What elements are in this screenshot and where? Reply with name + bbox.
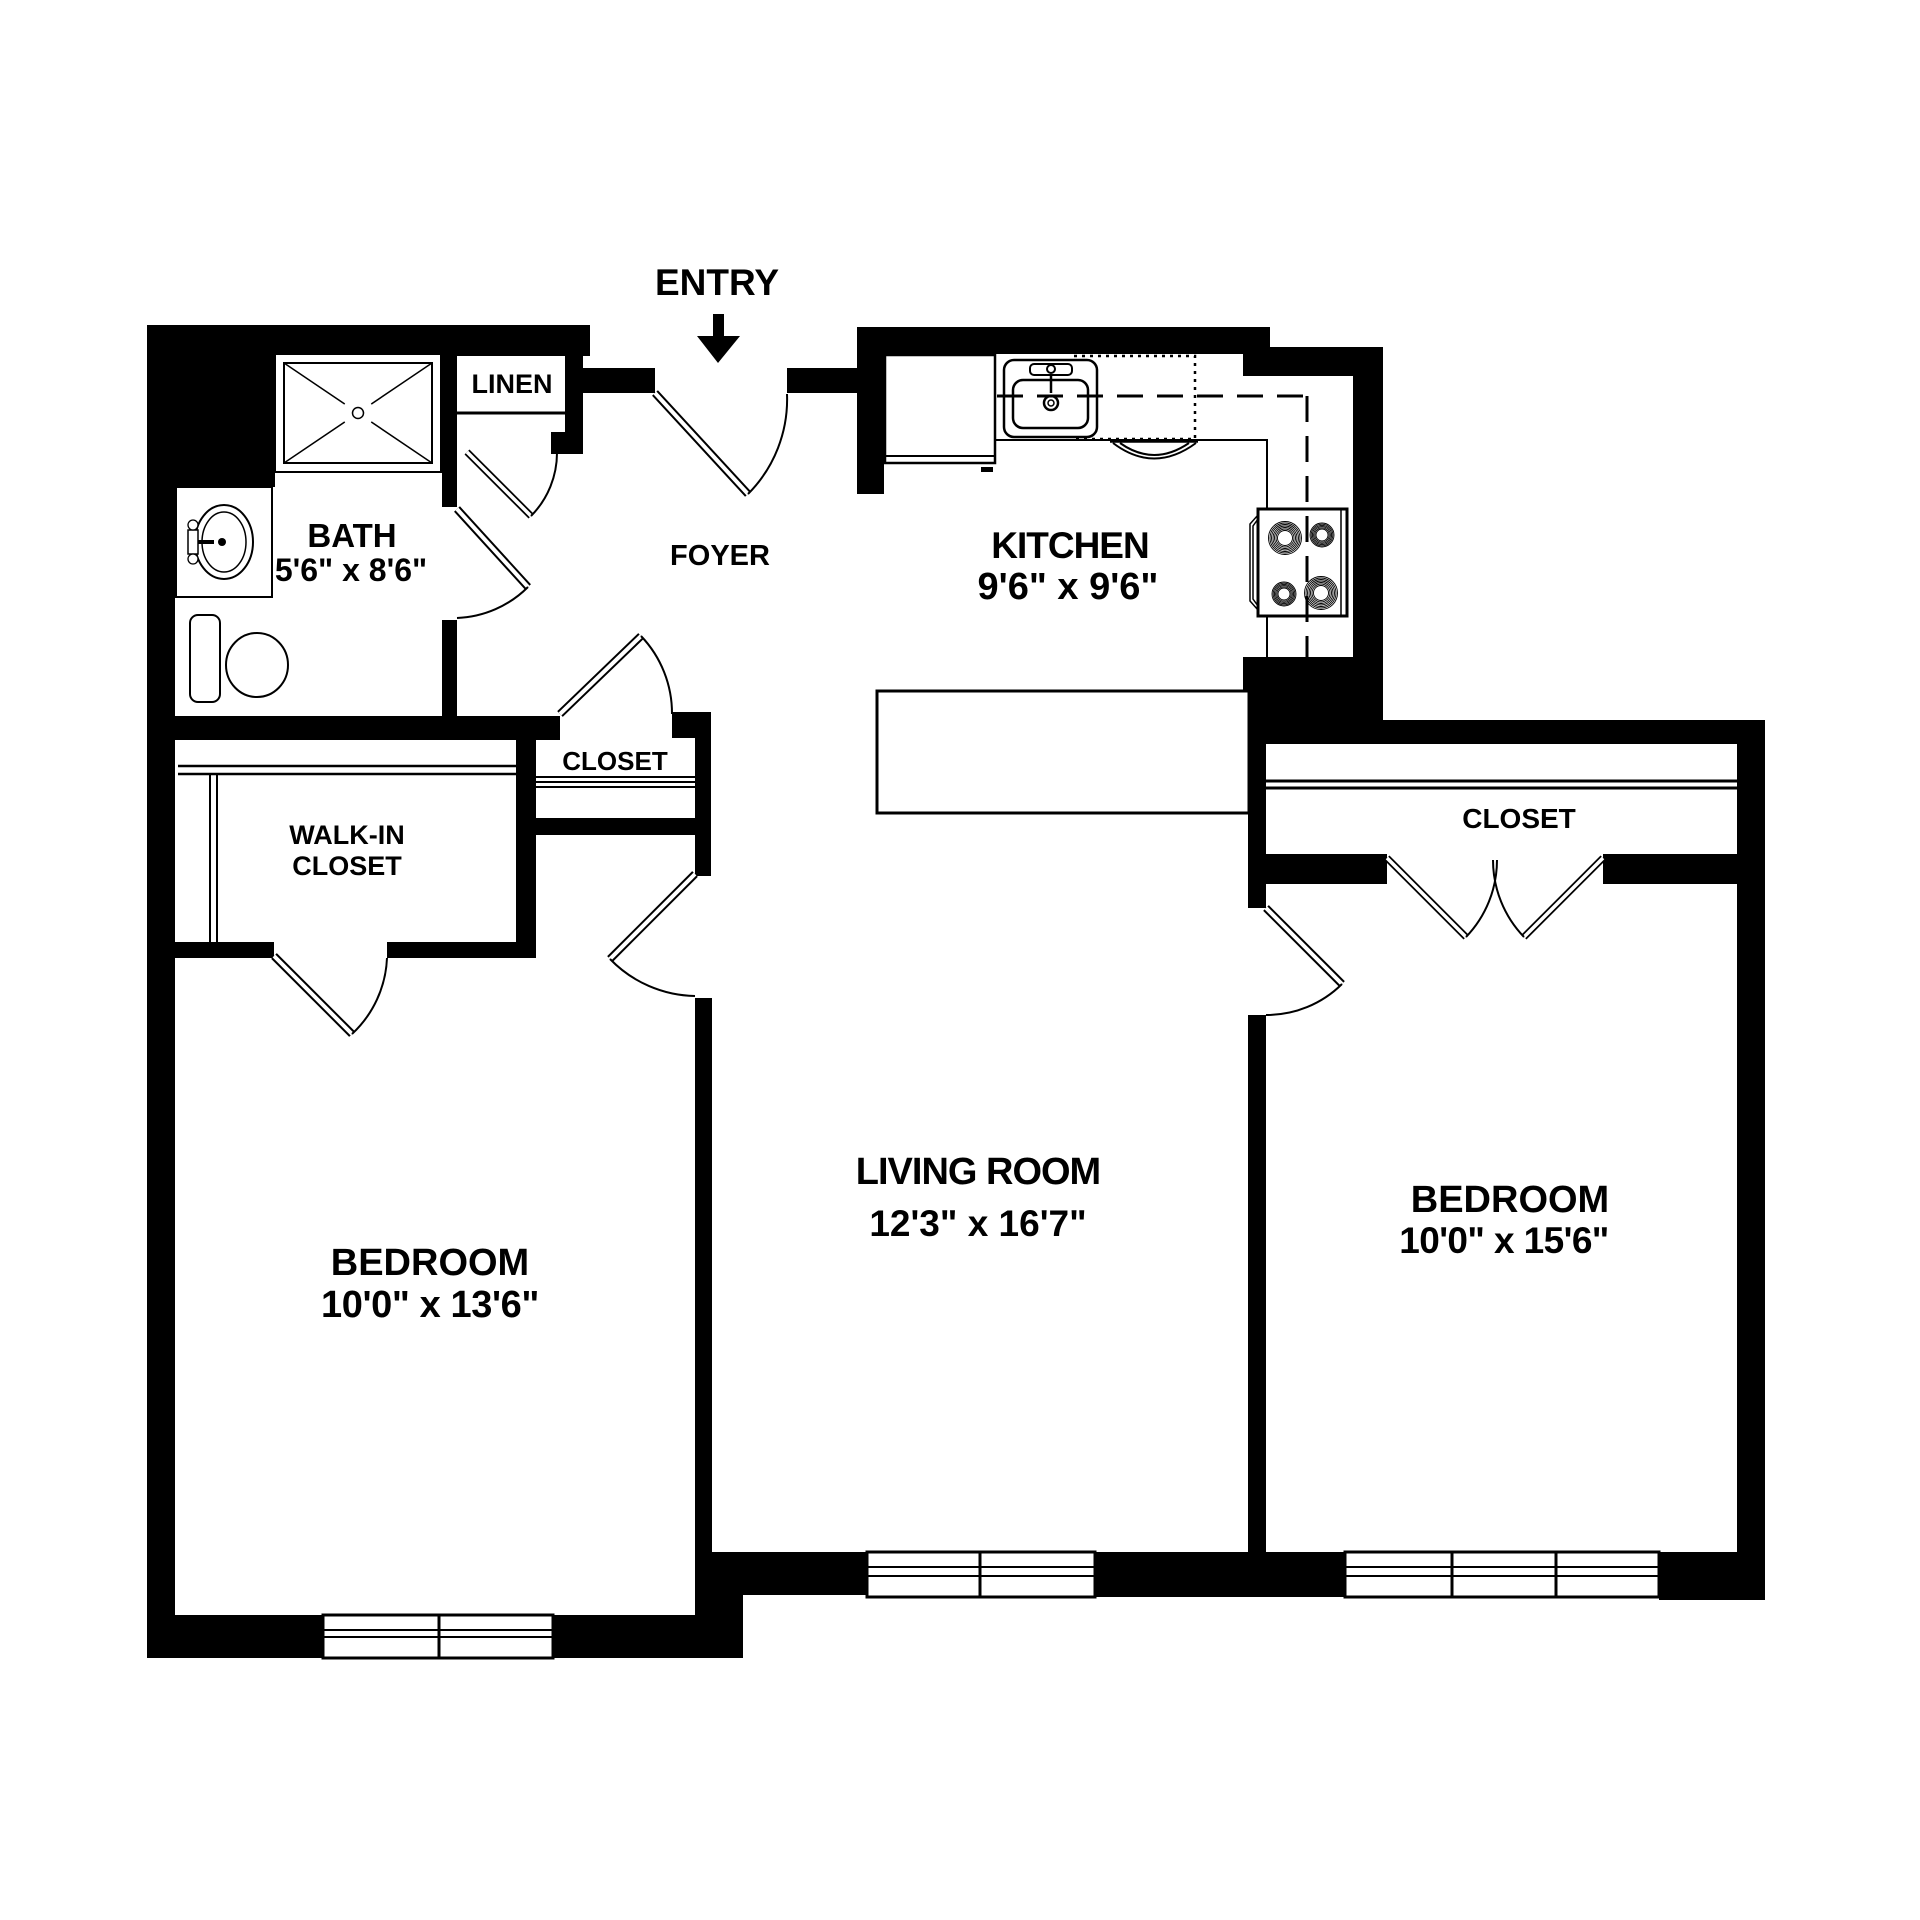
svg-text:LINEN: LINEN [472, 369, 553, 399]
svg-text:BATH: BATH [307, 517, 396, 554]
svg-text:CLOSET: CLOSET [1462, 803, 1576, 834]
svg-text:FOYER: FOYER [670, 540, 770, 572]
svg-text:BEDROOM: BEDROOM [1411, 1179, 1609, 1221]
svg-text:BEDROOM: BEDROOM [331, 1242, 529, 1284]
svg-text:5'6" x 8'6": 5'6" x 8'6" [275, 552, 427, 588]
svg-text:LIVING ROOM: LIVING ROOM [856, 1151, 1100, 1193]
svg-text:ENTRY: ENTRY [655, 262, 779, 303]
svg-text:KITCHEN: KITCHEN [991, 525, 1148, 566]
svg-text:10'0" x 13'6": 10'0" x 13'6" [321, 1284, 539, 1326]
svg-text:WALK-IN: WALK-IN [289, 820, 404, 850]
svg-text:CLOSET: CLOSET [562, 746, 668, 776]
svg-text:CLOSET: CLOSET [292, 851, 402, 881]
svg-text:9'6" x 9'6": 9'6" x 9'6" [978, 566, 1159, 608]
svg-text:10'0" x 15'6": 10'0" x 15'6" [1399, 1220, 1609, 1261]
svg-text:12'3" x 16'7": 12'3" x 16'7" [869, 1203, 1086, 1244]
